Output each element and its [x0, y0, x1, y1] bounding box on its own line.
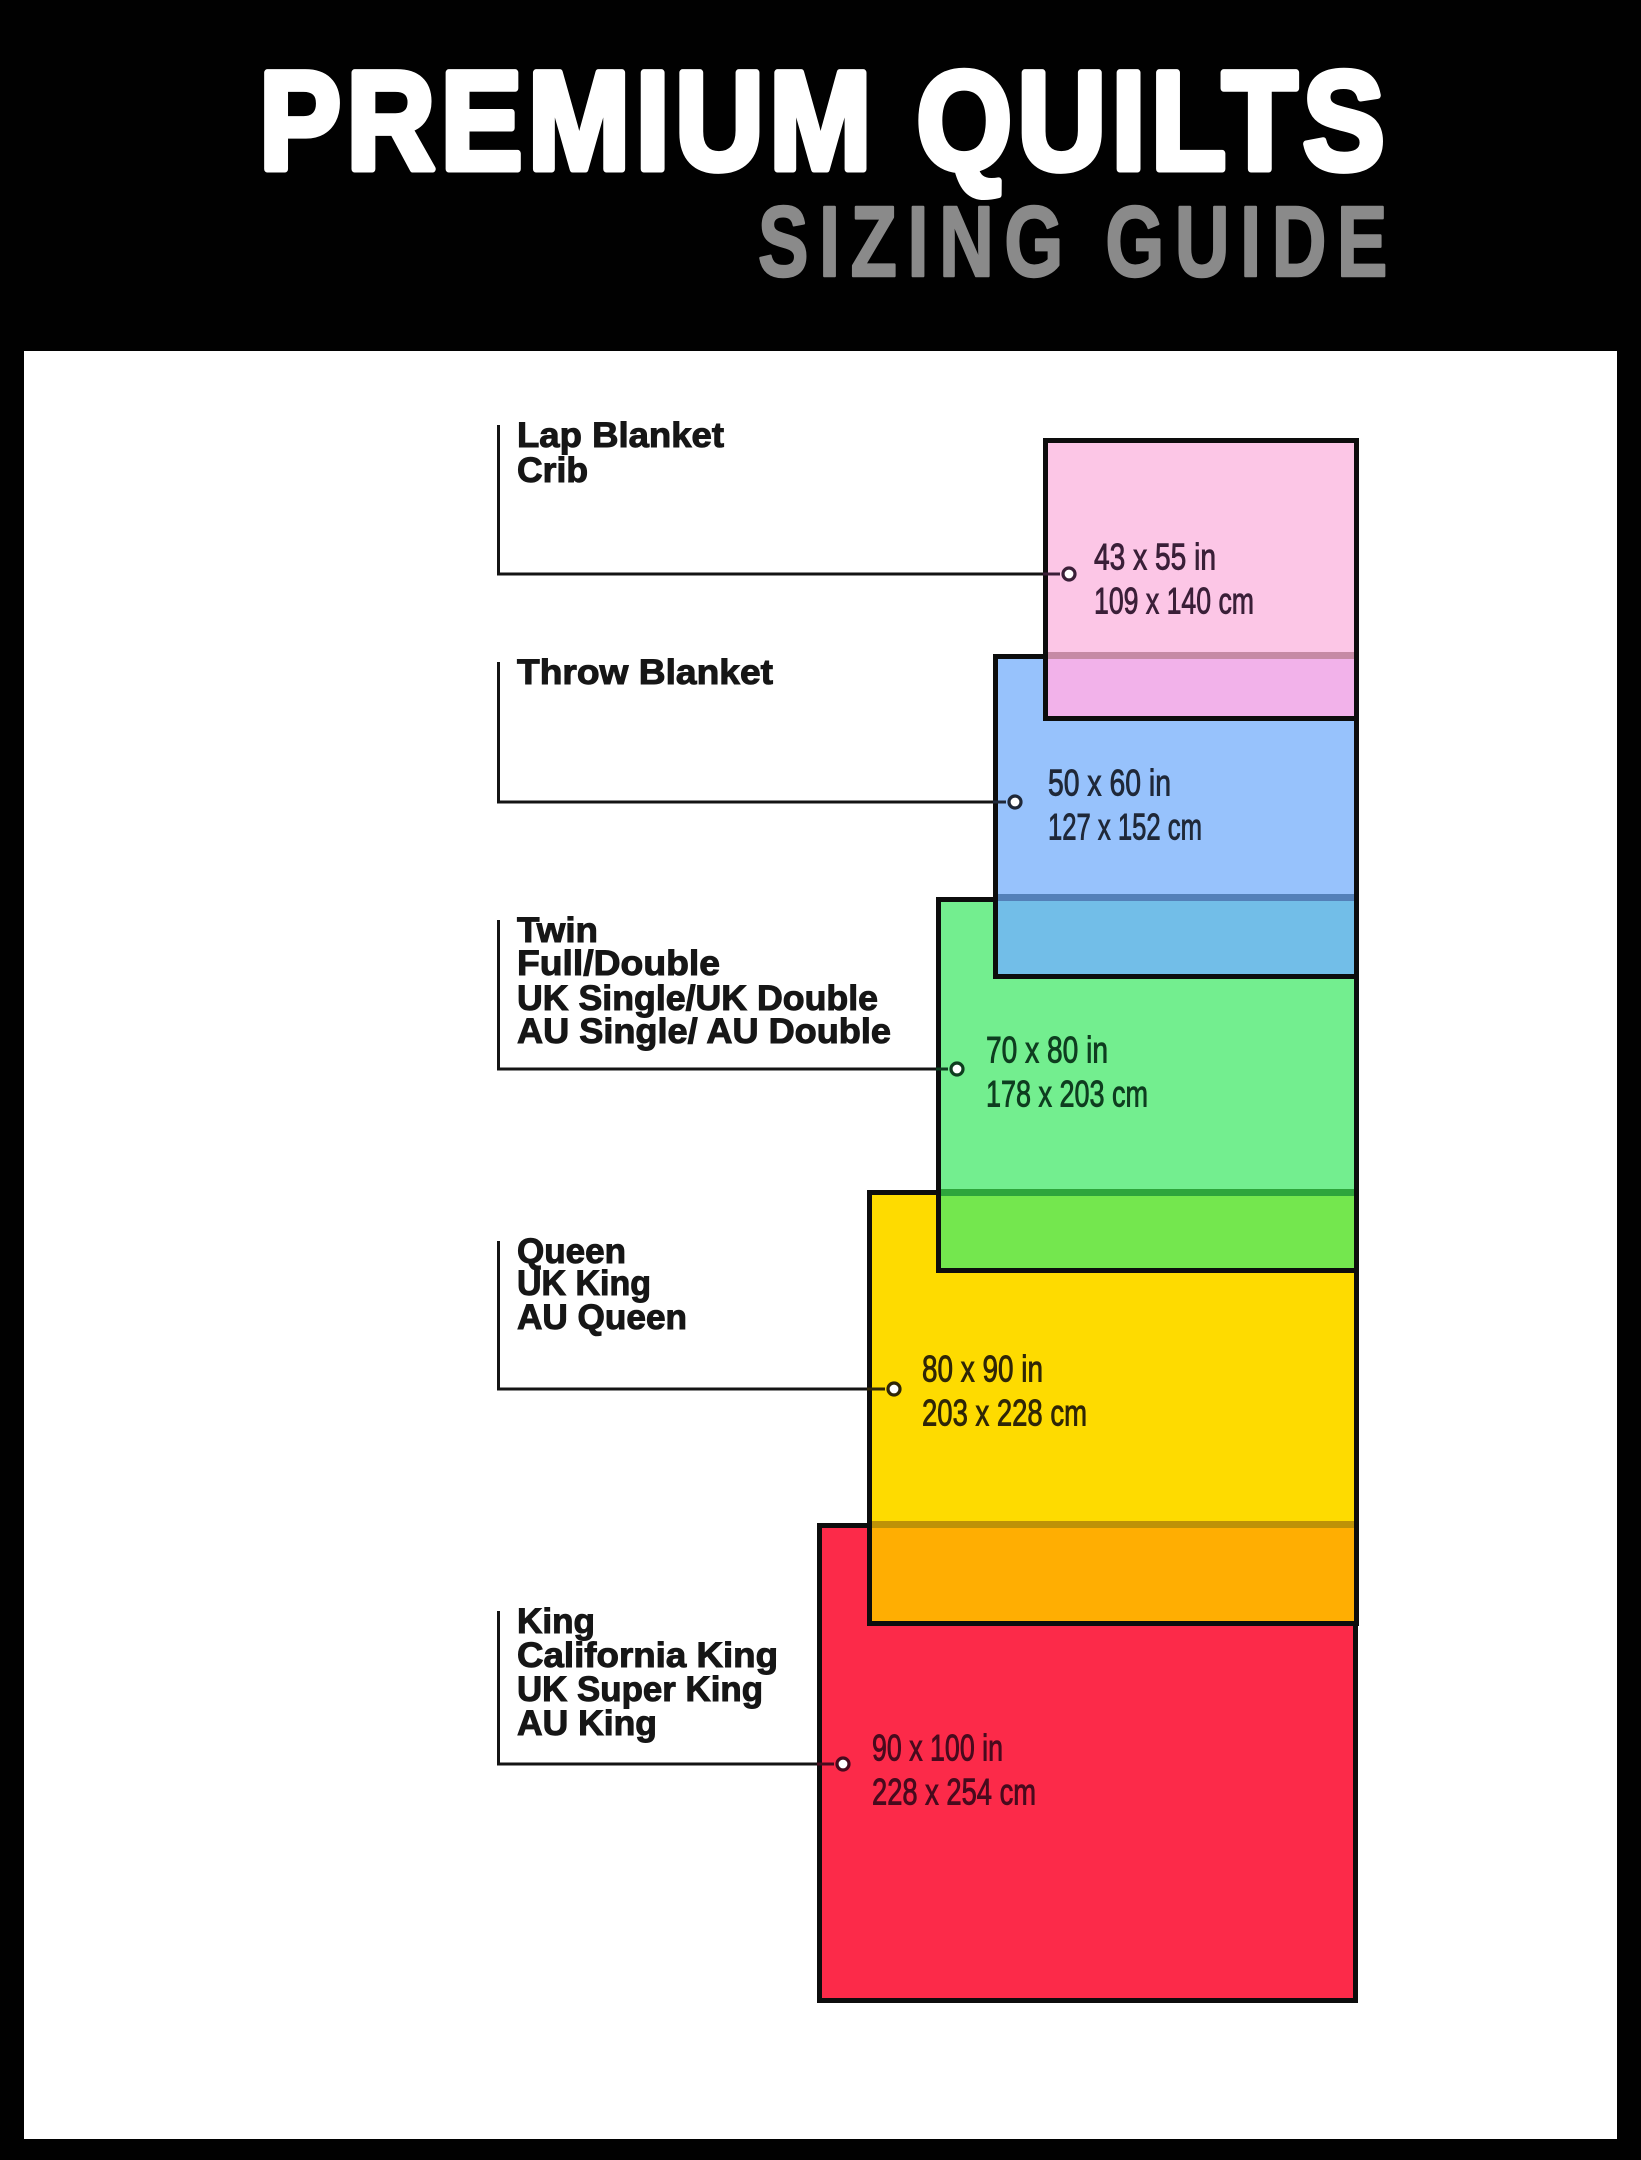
svg-text:AU King: AU King [517, 1704, 657, 1743]
svg-text:80 x 90 in: 80 x 90 in [922, 1349, 1043, 1390]
svg-text:AU Single/ AU Double: AU Single/ AU Double [517, 1012, 891, 1051]
svg-text:Full/Double: Full/Double [517, 944, 720, 983]
svg-text:70 x 80 in: 70 x 80 in [986, 1030, 1108, 1071]
svg-text:109 x 140 cm: 109 x 140 cm [1094, 581, 1254, 622]
svg-text:PREMIUM QUILTS: PREMIUM QUILTS [259, 42, 1390, 199]
svg-text:Lap Blanket: Lap Blanket [517, 416, 724, 455]
svg-text:Throw Blanket: Throw Blanket [517, 653, 773, 692]
svg-text:SIZING GUIDE: SIZING GUIDE [758, 186, 1398, 298]
svg-text:50 x 60 in: 50 x 60 in [1048, 763, 1171, 804]
svg-text:203 x 228 cm: 203 x 228 cm [922, 1393, 1087, 1434]
svg-text:228 x 254 cm: 228 x 254 cm [872, 1772, 1036, 1813]
svg-text:178 x 203 cm: 178 x 203 cm [986, 1074, 1148, 1115]
svg-text:AU Queen: AU Queen [517, 1298, 687, 1337]
svg-text:Crib: Crib [517, 451, 588, 490]
svg-text:127 x 152 cm: 127 x 152 cm [1048, 807, 1202, 848]
svg-text:43 x 55 in: 43 x 55 in [1094, 537, 1216, 578]
svg-text:90 x 100 in: 90 x 100 in [872, 1728, 1003, 1769]
